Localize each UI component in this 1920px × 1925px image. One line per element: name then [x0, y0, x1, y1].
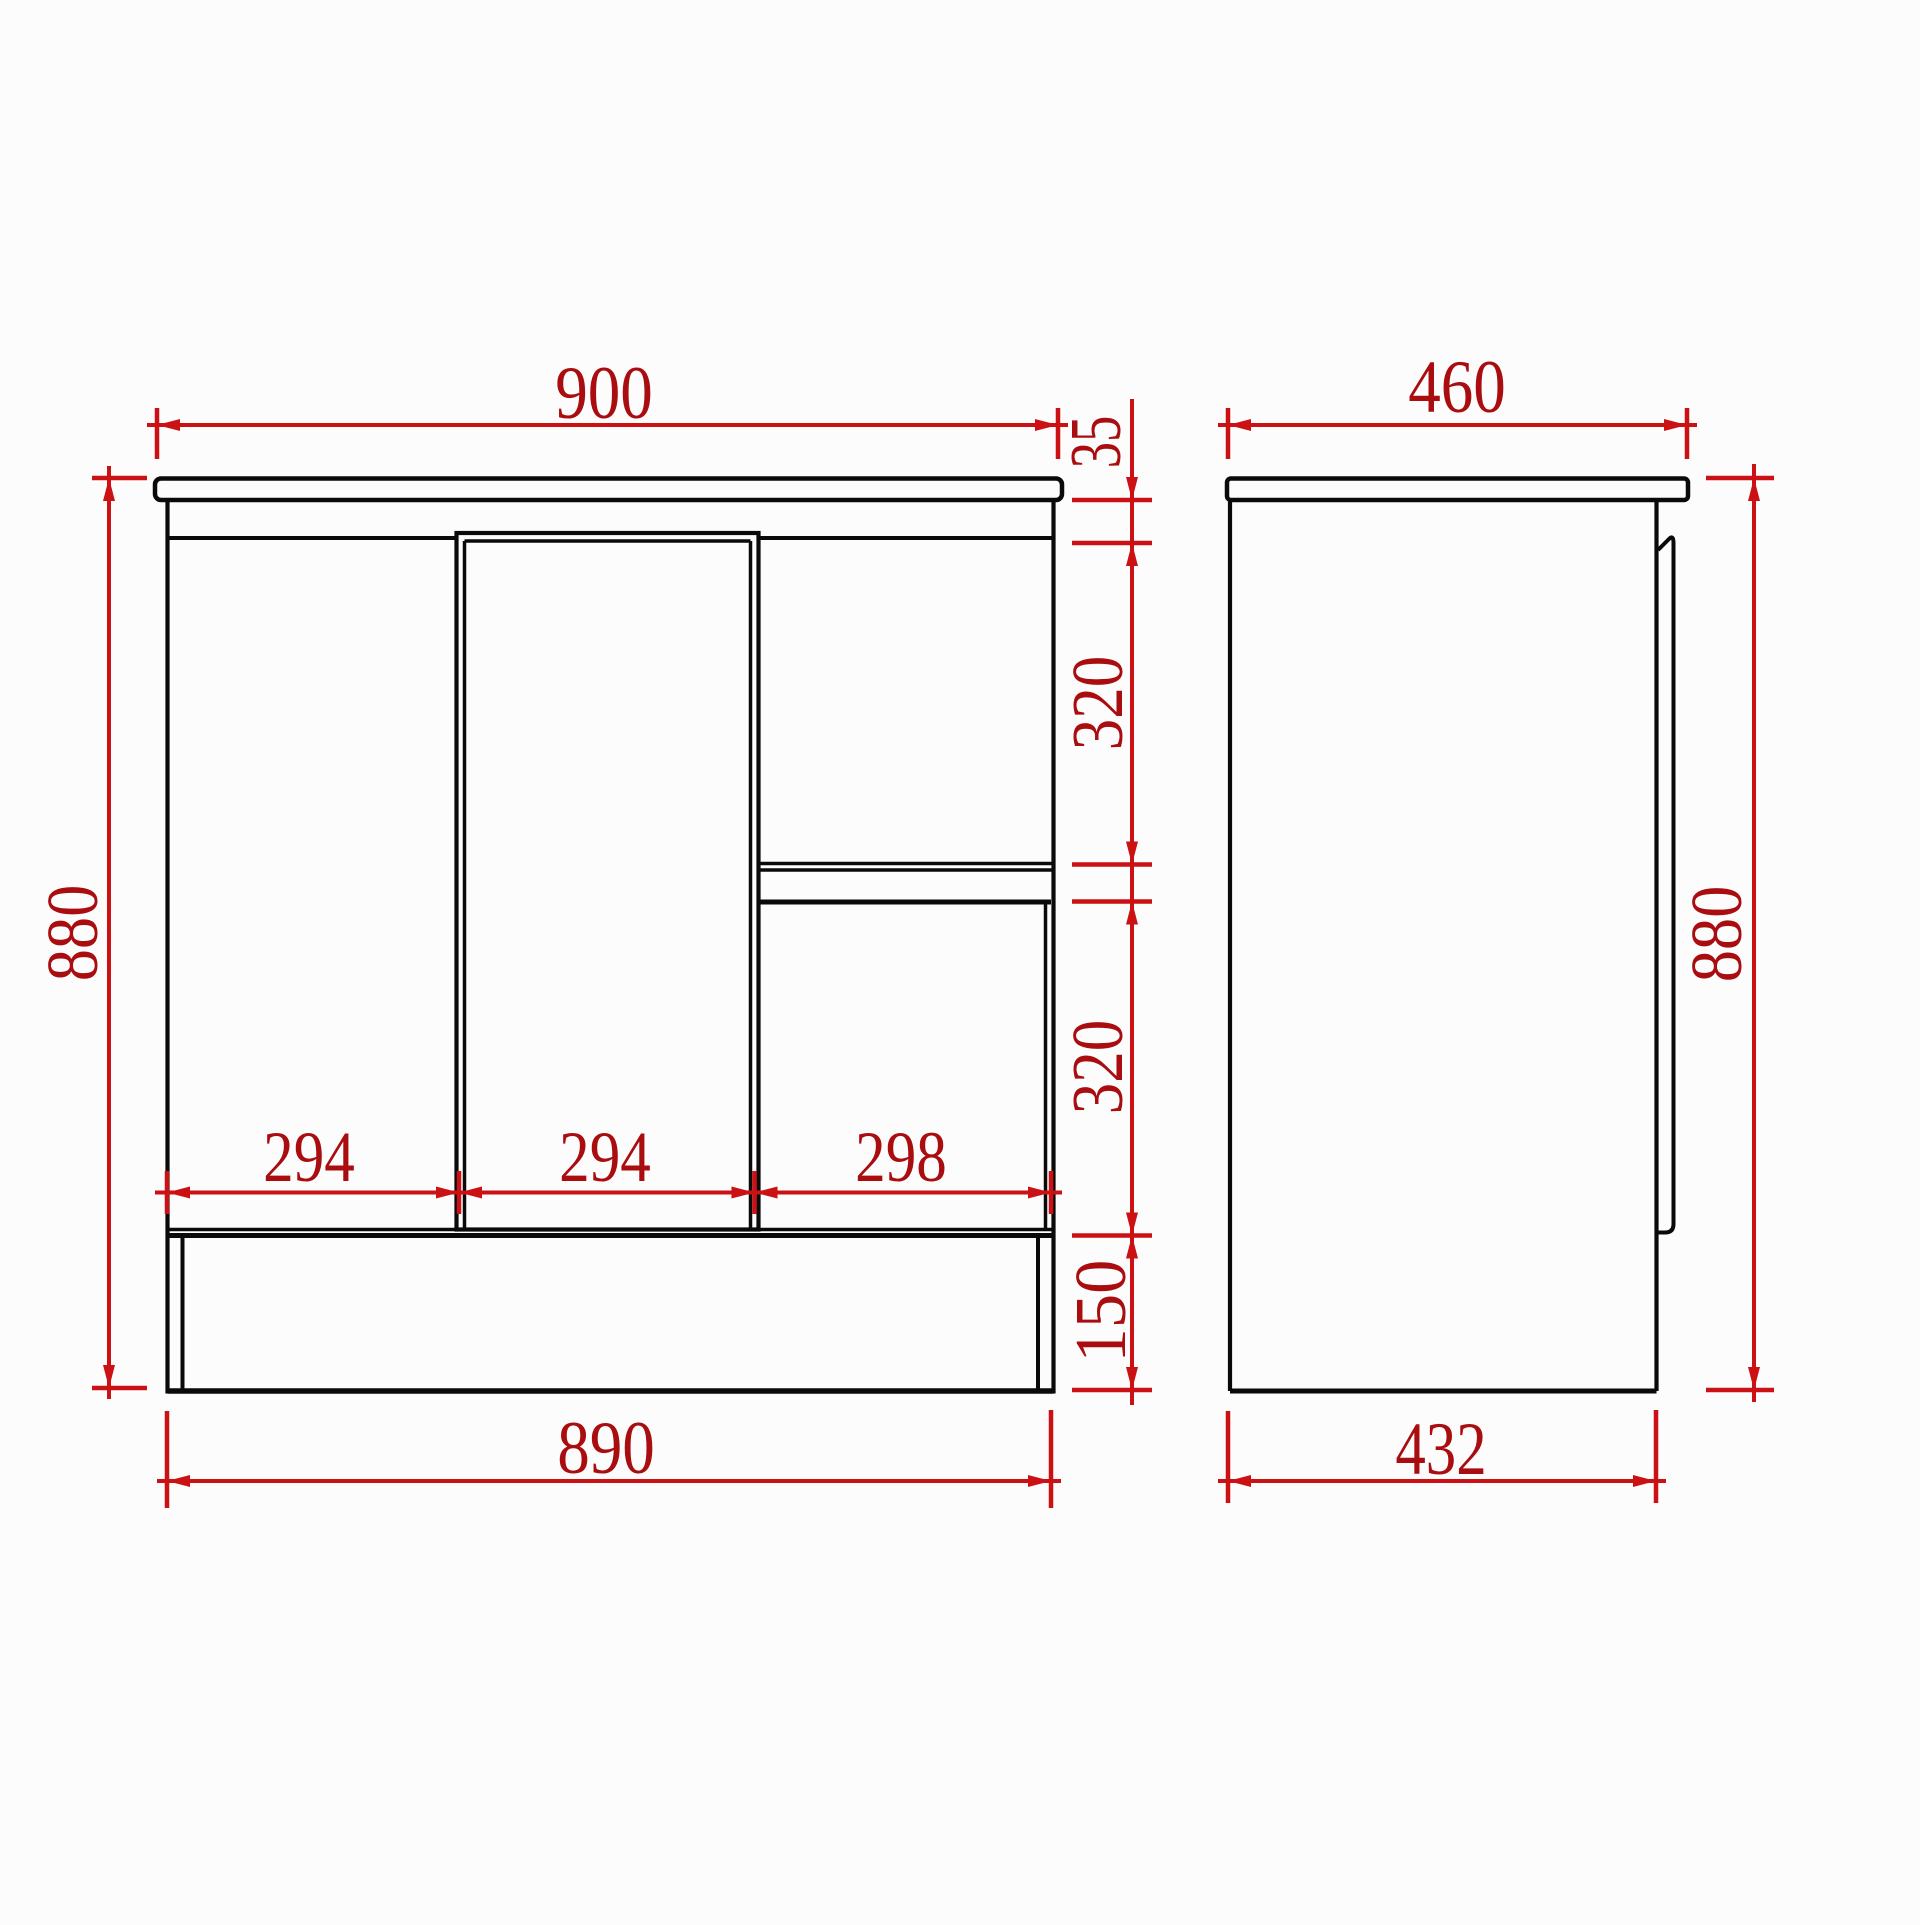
svg-text:294: 294	[559, 1119, 651, 1198]
svg-text:890: 890	[557, 1407, 655, 1490]
svg-text:900: 900	[555, 352, 653, 435]
svg-text:320: 320	[1057, 656, 1139, 750]
svg-text:460: 460	[1408, 346, 1506, 429]
svg-text:35: 35	[1054, 416, 1136, 468]
svg-text:150: 150	[1061, 1260, 1142, 1363]
svg-text:320: 320	[1057, 1020, 1139, 1114]
svg-text:298: 298	[855, 1119, 947, 1198]
svg-text:880: 880	[31, 885, 113, 982]
svg-text:294: 294	[263, 1119, 355, 1198]
svg-text:432: 432	[1395, 1407, 1486, 1490]
svg-text:880: 880	[1675, 886, 1757, 983]
